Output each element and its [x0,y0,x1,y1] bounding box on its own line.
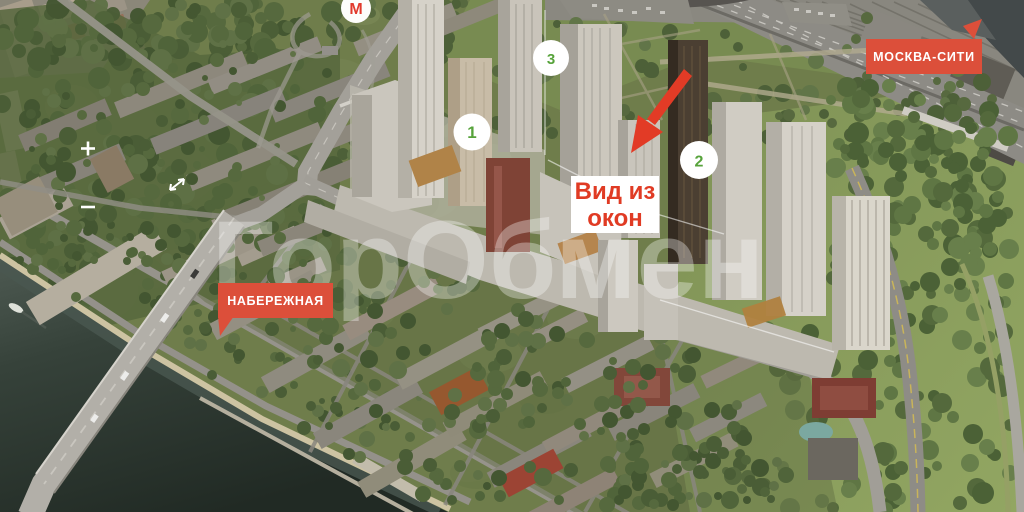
svg-text:МОСКВА-СИТИ: МОСКВА-СИТИ [873,50,975,64]
svg-text:Вид из: Вид из [575,178,656,205]
svg-text:М: М [349,1,362,18]
svg-text:окон: окон [587,205,643,232]
svg-text:2: 2 [695,154,704,171]
svg-text:НАБЕРЕЖНАЯ: НАБЕРЕЖНАЯ [227,294,323,308]
svg-text:3: 3 [547,51,555,68]
svg-text:1: 1 [467,123,476,142]
